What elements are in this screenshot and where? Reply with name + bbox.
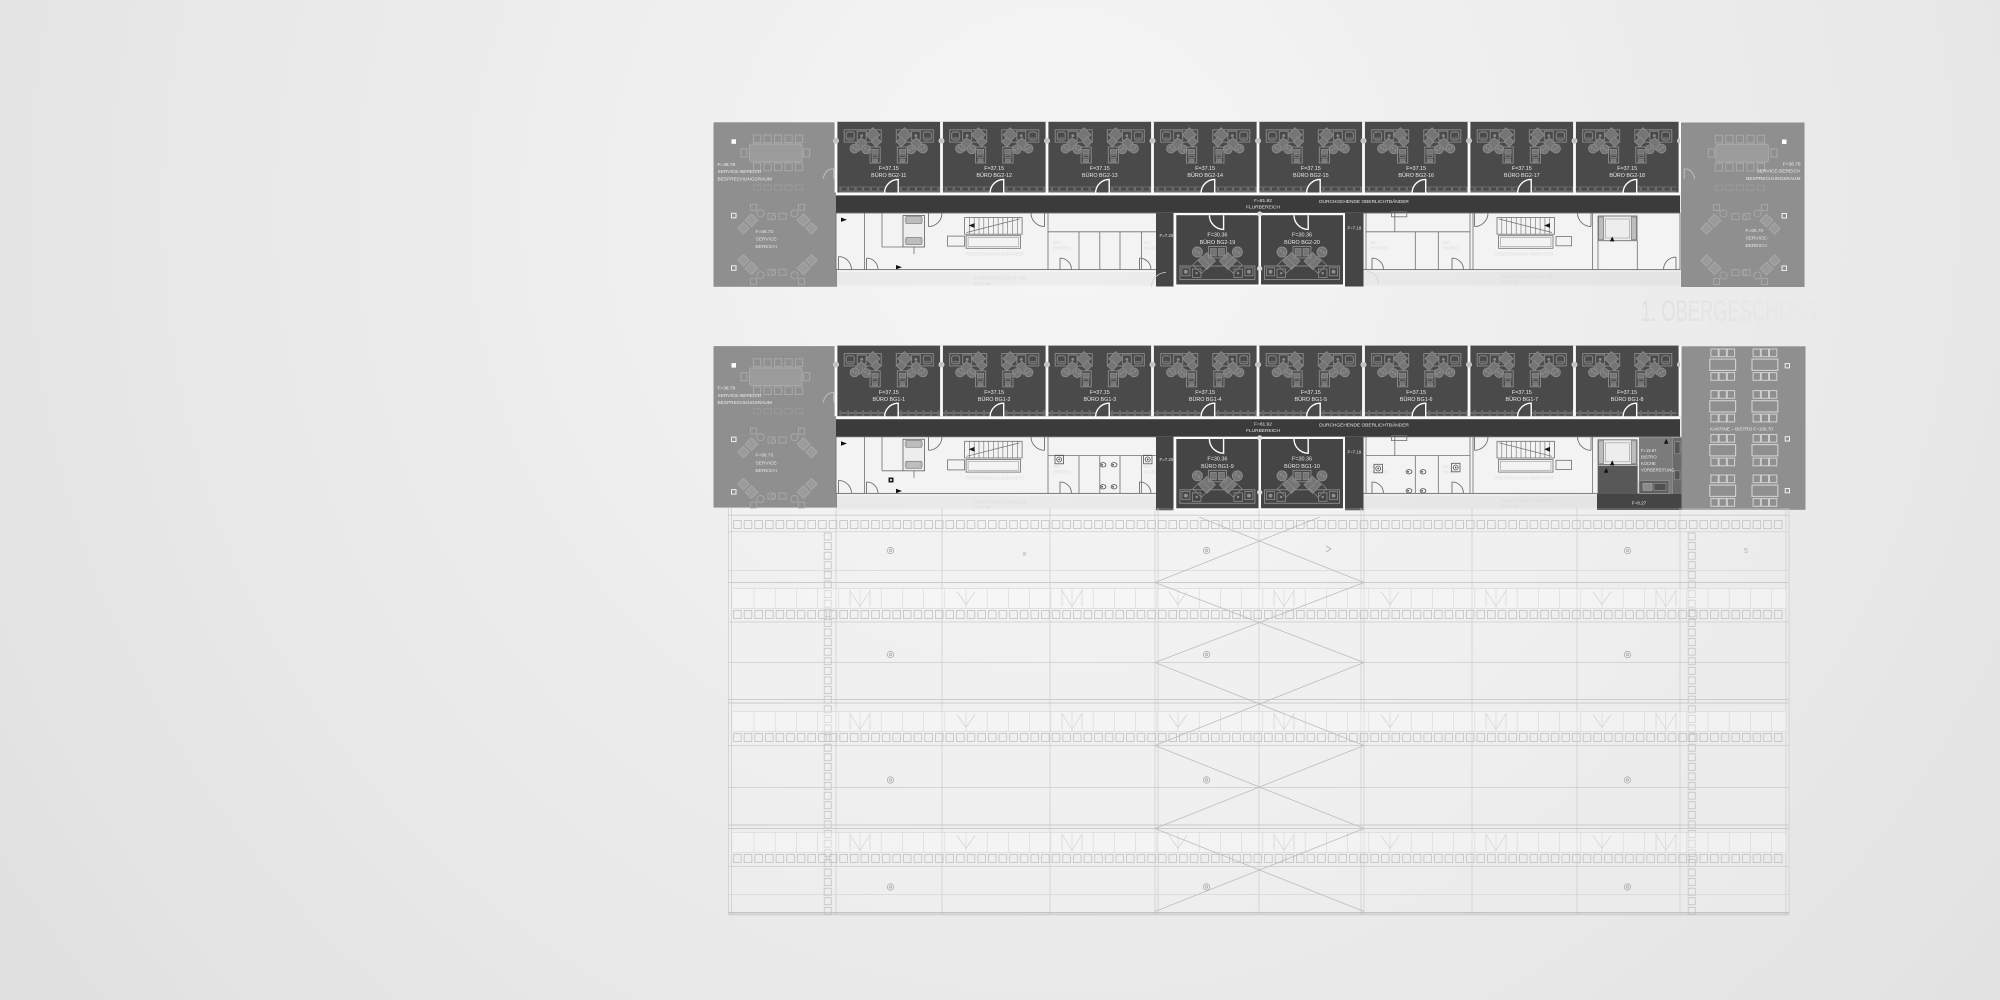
svg-text:F=37.15: F=37.15 (879, 390, 899, 396)
svg-text:F=81.92: F=81.92 (1254, 198, 1272, 204)
svg-text:F=37.15: F=37.15 (1512, 166, 1532, 172)
svg-text:BÜRO BG1-9: BÜRO BG1-9 (1201, 463, 1234, 470)
svg-text:FUNKTIONSFLÄCHE SW: FUNKTIONSFLÄCHE SW (1501, 273, 1554, 279)
svg-text:FUNKTIONSFLÄCHE SW: FUNKTIONSFLÄCHE SW (1501, 497, 1554, 503)
svg-text:BÜRO BG1-2: BÜRO BG1-2 (978, 396, 1011, 403)
svg-text:HERREN: HERREN (1370, 246, 1388, 251)
svg-text:F=38.78: F=38.78 (1783, 161, 1801, 167)
svg-text:KÜCHE: KÜCHE (1641, 461, 1656, 466)
svg-text:BEREICH: BEREICH (756, 244, 778, 250)
svg-text:DURCHGEHENDE OBERLICHTBÄNDER: DURCHGEHENDE OBERLICHTBÄNDER (1319, 198, 1409, 205)
svg-text:F=66.70: F=66.70 (1746, 228, 1764, 234)
svg-text:WC: WC (1443, 240, 1450, 245)
svg-text:TREPPENHAUS NORD-OST: TREPPENHAUS NORD-OST (1494, 252, 1553, 257)
svg-text:F=37.15: F=37.15 (1512, 390, 1532, 396)
svg-text:BEREICH: BEREICH (756, 468, 778, 474)
svg-text:F=66.70: F=66.70 (756, 229, 774, 235)
svg-text:F=7.19: F=7.19 (1348, 226, 1362, 231)
svg-text:F=30.36: F=30.36 (1292, 233, 1312, 239)
svg-text:WC: WC (1144, 464, 1151, 469)
svg-text:BÜRO BG1-3: BÜRO BG1-3 (1083, 396, 1116, 403)
svg-text:BÜRO BG1-6: BÜRO BG1-6 (1400, 396, 1433, 403)
svg-text:BÜRO BG2-19: BÜRO BG2-19 (1200, 239, 1236, 246)
svg-text:BÜRO BG2-11: BÜRO BG2-11 (871, 172, 906, 179)
svg-text:F=30.36: F=30.36 (1292, 456, 1312, 462)
svg-text:FUNKTIONSFLÄCHE SW: FUNKTIONSFLÄCHE SW (974, 275, 1027, 281)
svg-text:F=37.15: F=37.15 (1617, 390, 1637, 396)
svg-text:SERVICE-: SERVICE- (756, 460, 779, 466)
svg-text:F=15.97: F=15.97 (1641, 448, 1657, 453)
svg-text:F=81.92: F=81.92 (1254, 422, 1272, 428)
svg-text:SERVICE-BEREICH: SERVICE-BEREICH (718, 393, 762, 399)
svg-text:KANTINE – BISTRO F=106.70: KANTINE – BISTRO F=106.70 (1710, 426, 1773, 431)
svg-text:F=22.29: F=22.29 (1501, 503, 1518, 508)
svg-text:SERVICE-BEREICH: SERVICE-BEREICH (718, 169, 762, 175)
svg-text:BÜRO BG1-8: BÜRO BG1-8 (1611, 396, 1644, 403)
svg-text:F=7.20: F=7.20 (1160, 457, 1174, 462)
svg-text:F=37.15: F=37.15 (1090, 166, 1110, 172)
svg-text:DURCHGEHENDE OBERLICHTBÄNDER: DURCHGEHENDE OBERLICHTBÄNDER (1319, 422, 1409, 429)
svg-text:F=30.36: F=30.36 (1207, 233, 1227, 239)
svg-text:F=7.20: F=7.20 (1160, 233, 1174, 238)
svg-text:BÜRO BG2-17: BÜRO BG2-17 (1504, 172, 1540, 179)
svg-text:F=37.15: F=37.15 (1195, 166, 1215, 172)
svg-text:BEREICH: BEREICH (1746, 243, 1768, 249)
svg-text:HERREN: HERREN (1053, 469, 1071, 474)
svg-text:BÜRO BG2-12: BÜRO BG2-12 (976, 172, 1012, 179)
svg-text:F=37.15: F=37.15 (984, 166, 1004, 172)
svg-text:WC: WC (1144, 240, 1151, 245)
svg-text:BESPRECHUNGSRAUM: BESPRECHUNGSRAUM (718, 176, 772, 182)
svg-text:F=37.15: F=37.15 (1406, 166, 1426, 172)
svg-text:1. OBERGESCHOSS: 1. OBERGESCHOSS (1641, 295, 1817, 328)
svg-text:BÜRO BG1-10: BÜRO BG1-10 (1284, 463, 1320, 470)
svg-text:BÜRO BG2-14: BÜRO BG2-14 (1187, 172, 1223, 179)
svg-text:BÜRO BG2-20: BÜRO BG2-20 (1284, 239, 1320, 246)
svg-text:F=37.15: F=37.15 (1617, 166, 1637, 172)
svg-text:HERREN: HERREN (1053, 246, 1071, 251)
svg-text:TREPPENHAUS SÜD-WEST: TREPPENHAUS SÜD-WEST (965, 474, 1024, 480)
svg-text:SERVICE-: SERVICE- (1746, 236, 1769, 242)
svg-text:HERREN: HERREN (1370, 469, 1388, 474)
svg-text:WC: WC (1370, 240, 1377, 245)
svg-text:BÜRO BG2-13: BÜRO BG2-13 (1082, 172, 1118, 179)
svg-text:WC: WC (1053, 464, 1060, 469)
svg-text:WC: WC (1443, 464, 1450, 469)
svg-text:DAMEN: DAMEN (1443, 246, 1458, 251)
svg-text:F=27.50: F=27.50 (974, 281, 991, 286)
svg-text:FUNKTIONSFLÄCHE SW: FUNKTIONSFLÄCHE SW (974, 498, 1027, 504)
svg-text:BÜRO BG1-5: BÜRO BG1-5 (1294, 396, 1327, 403)
svg-text:FLURBEREICH: FLURBEREICH (1246, 204, 1280, 210)
svg-text:BISTRO: BISTRO (1641, 454, 1657, 459)
svg-text:TREPPENHAUS SÜD-WEST: TREPPENHAUS SÜD-WEST (965, 251, 1024, 257)
svg-text:BESPRECHUNGSRAUM: BESPRECHUNGSRAUM (1746, 176, 1800, 182)
svg-text:F=37.15: F=37.15 (879, 166, 899, 172)
svg-text:F=37.15: F=37.15 (984, 390, 1004, 396)
svg-text:BÜRO BG1-4: BÜRO BG1-4 (1189, 396, 1222, 403)
svg-text:F=7.19: F=7.19 (1348, 449, 1362, 454)
svg-text:BÜRO BG2-15: BÜRO BG2-15 (1293, 172, 1329, 179)
svg-text:F=38.78: F=38.78 (718, 162, 736, 168)
svg-text:FLURBEREICH: FLURBEREICH (1246, 428, 1280, 434)
svg-text:SERVICE-BEREICH: SERVICE-BEREICH (1757, 169, 1801, 175)
svg-text:F=37.15: F=37.15 (1301, 390, 1321, 396)
svg-text:BÜRO BG2-16: BÜRO BG2-16 (1398, 172, 1434, 179)
svg-text:WC: WC (1053, 240, 1060, 245)
svg-text:≡: ≡ (1022, 552, 1029, 556)
svg-text:5: 5 (1744, 548, 1748, 555)
svg-text:F=30.36: F=30.36 (1207, 456, 1227, 462)
svg-text:F=66.70: F=66.70 (756, 453, 774, 459)
svg-text:F=37.15: F=37.15 (1090, 390, 1110, 396)
svg-text:TREPPENHAUS NORD-OST: TREPPENHAUS NORD-OST (1494, 475, 1553, 480)
svg-text:F=37.15: F=37.15 (1195, 390, 1215, 396)
svg-text:SERVICE-: SERVICE- (756, 237, 779, 243)
svg-text:BÜRO BG2-18: BÜRO BG2-18 (1609, 172, 1645, 179)
svg-text:BÜRO BG1-1: BÜRO BG1-1 (872, 396, 905, 403)
svg-text:F=37.15: F=37.15 (1301, 166, 1321, 172)
svg-text:F=38.78: F=38.78 (718, 386, 736, 392)
svg-text:BÜRO BG1-7: BÜRO BG1-7 (1505, 396, 1538, 403)
svg-text:F=37.15: F=37.15 (1406, 390, 1426, 396)
svg-text:BESPRECHUNGSRAUM: BESPRECHUNGSRAUM (718, 400, 772, 406)
svg-text:F=22.29: F=22.29 (1501, 280, 1518, 285)
svg-text:F=8.27: F=8.27 (1632, 501, 1647, 506)
svg-text:VORBEREITUNG: VORBEREITUNG (1641, 467, 1675, 472)
